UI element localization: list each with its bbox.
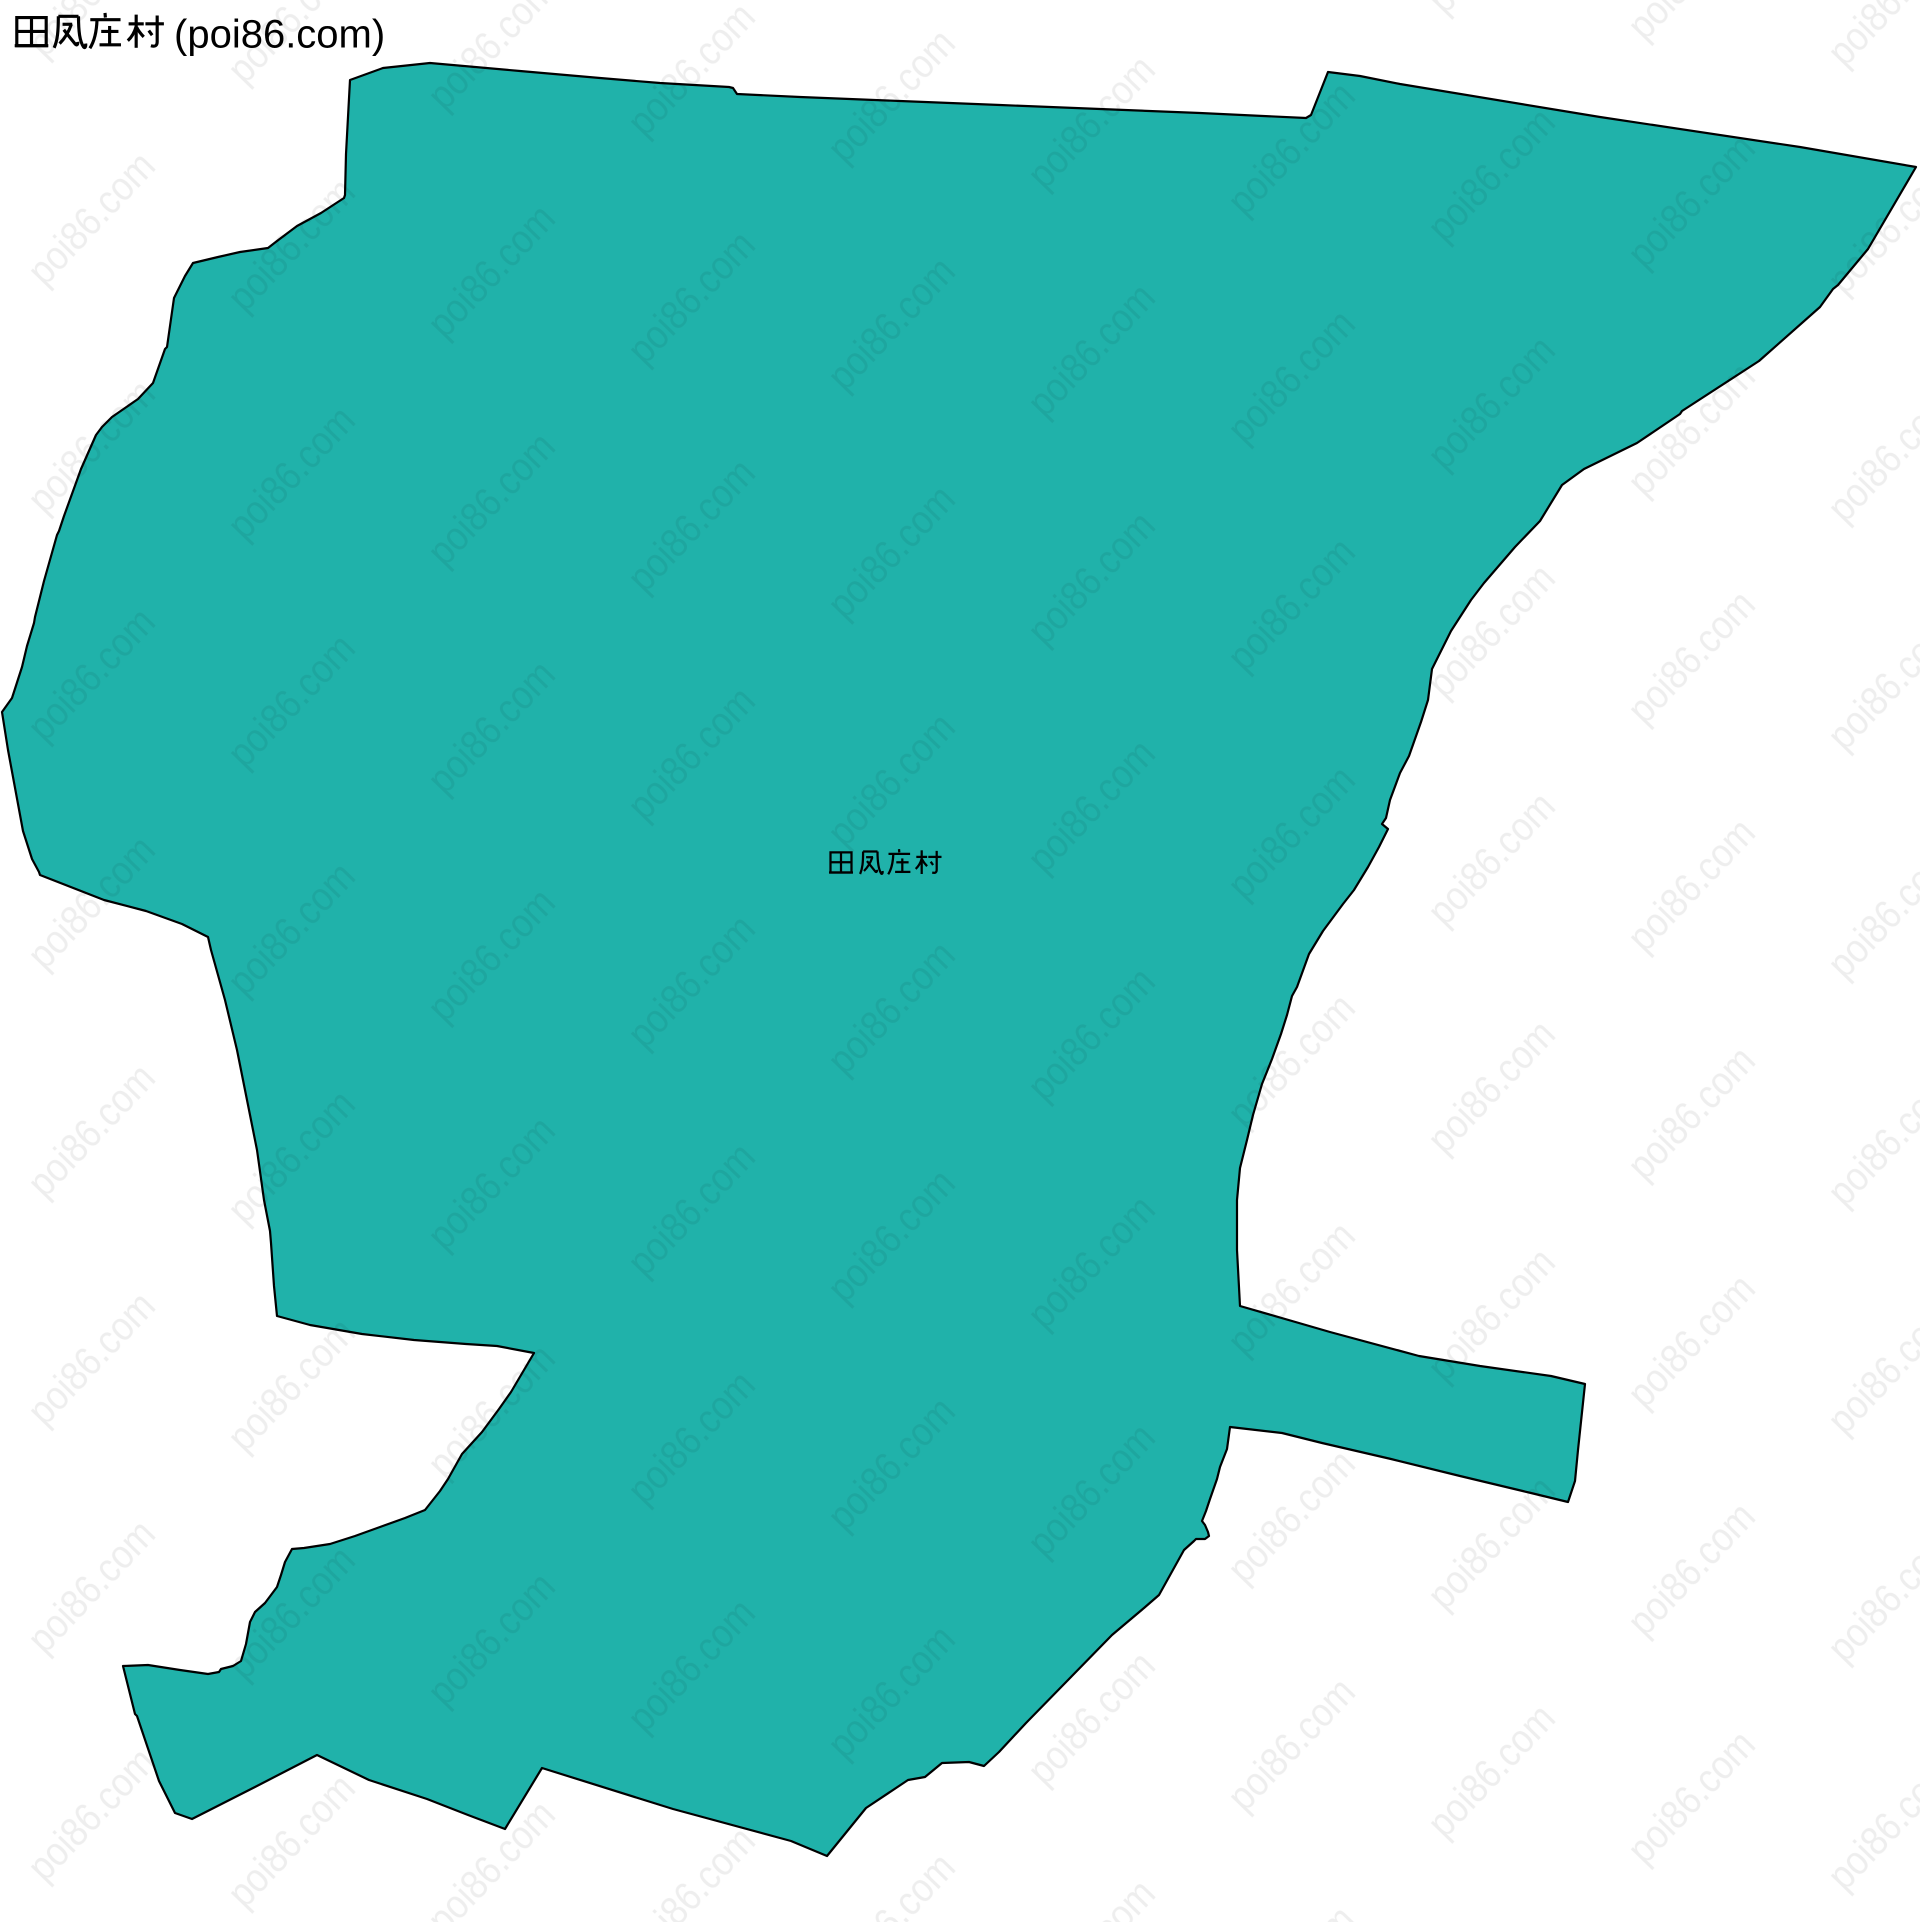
svg-text:(poi86.com): (poi86.com) — [174, 13, 385, 57]
